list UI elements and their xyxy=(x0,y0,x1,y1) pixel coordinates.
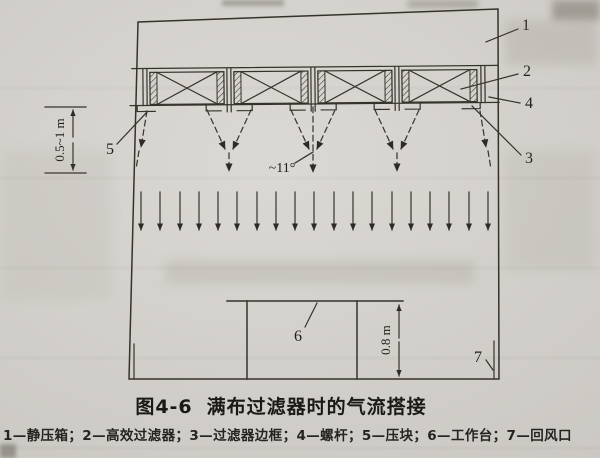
scanned-book-page: ~11° xyxy=(0,0,600,458)
filter-frame-hatch xyxy=(150,72,157,104)
angle-leader-line xyxy=(295,152,313,163)
jet-angle-value: ~11° xyxy=(269,161,296,176)
jet-boundary-cones xyxy=(136,107,491,172)
callout-number: 2 xyxy=(523,63,531,80)
callout-3-filter-frame: 3 xyxy=(472,106,533,167)
callout-number: 6 xyxy=(294,328,302,345)
callout-number: 5 xyxy=(106,141,114,158)
hepa-filter-module xyxy=(402,70,477,103)
end-screw-right xyxy=(481,67,485,103)
filter-frame-hatch xyxy=(402,70,409,102)
workbench xyxy=(227,301,403,379)
pressure-block xyxy=(374,103,420,109)
hepa-filter-module xyxy=(318,70,392,103)
hepa-filter-module xyxy=(150,72,224,105)
figure-number: 图4-6 xyxy=(135,396,192,418)
dimension-value: 0.8 m xyxy=(378,325,393,355)
dimension-value: 0.5~1 m xyxy=(52,118,67,161)
callout-number: 3 xyxy=(525,150,533,167)
callout-leader xyxy=(472,106,521,155)
figure-title: 满布过滤器时的气流搭接 xyxy=(207,396,427,418)
callout-leader xyxy=(486,29,518,42)
callout-leader xyxy=(486,360,493,370)
dimension-filter-to-merge: 0.5~1 m xyxy=(45,107,86,173)
filter-frame-hatch xyxy=(301,71,308,103)
uniform-downflow-arrows xyxy=(141,192,488,230)
callout-7-return-air: 7 xyxy=(474,349,493,370)
callout-number: 4 xyxy=(525,95,533,112)
callout-number: 7 xyxy=(474,349,482,366)
airflow-diagram: ~11° xyxy=(0,0,600,458)
filter-bank xyxy=(130,65,499,112)
callout-leader xyxy=(305,303,317,327)
filter-frame-hatch xyxy=(217,72,224,104)
filter-frame-hatch xyxy=(234,72,241,104)
dimension-workbench-height: 0.8 m xyxy=(378,305,399,376)
pressure-block xyxy=(462,103,480,109)
callout-5-pressure-block: 5 xyxy=(106,112,147,158)
figure-legend: 1—静压箱；2—高效过滤器；3—过滤器边框；4—螺杆；5—压块；6—工作台；7—… xyxy=(3,424,597,444)
callout-1-plenum: 1 xyxy=(486,17,530,42)
callout-6-workbench: 6 xyxy=(294,303,317,345)
jet-angle-annotation: ~11° xyxy=(269,152,313,176)
figure-caption: 图4-6满布过滤器时的气流搭接 xyxy=(0,392,581,419)
callout-number: 1 xyxy=(522,17,530,34)
callout-4-screw: 4 xyxy=(489,95,533,112)
filter-frame-hatch xyxy=(385,70,392,102)
filter-frame-hatch xyxy=(318,71,325,103)
end-screw-left xyxy=(143,69,147,105)
pressure-block xyxy=(137,105,155,111)
hepa-filter-module xyxy=(234,71,308,104)
pressure-block xyxy=(206,105,252,111)
